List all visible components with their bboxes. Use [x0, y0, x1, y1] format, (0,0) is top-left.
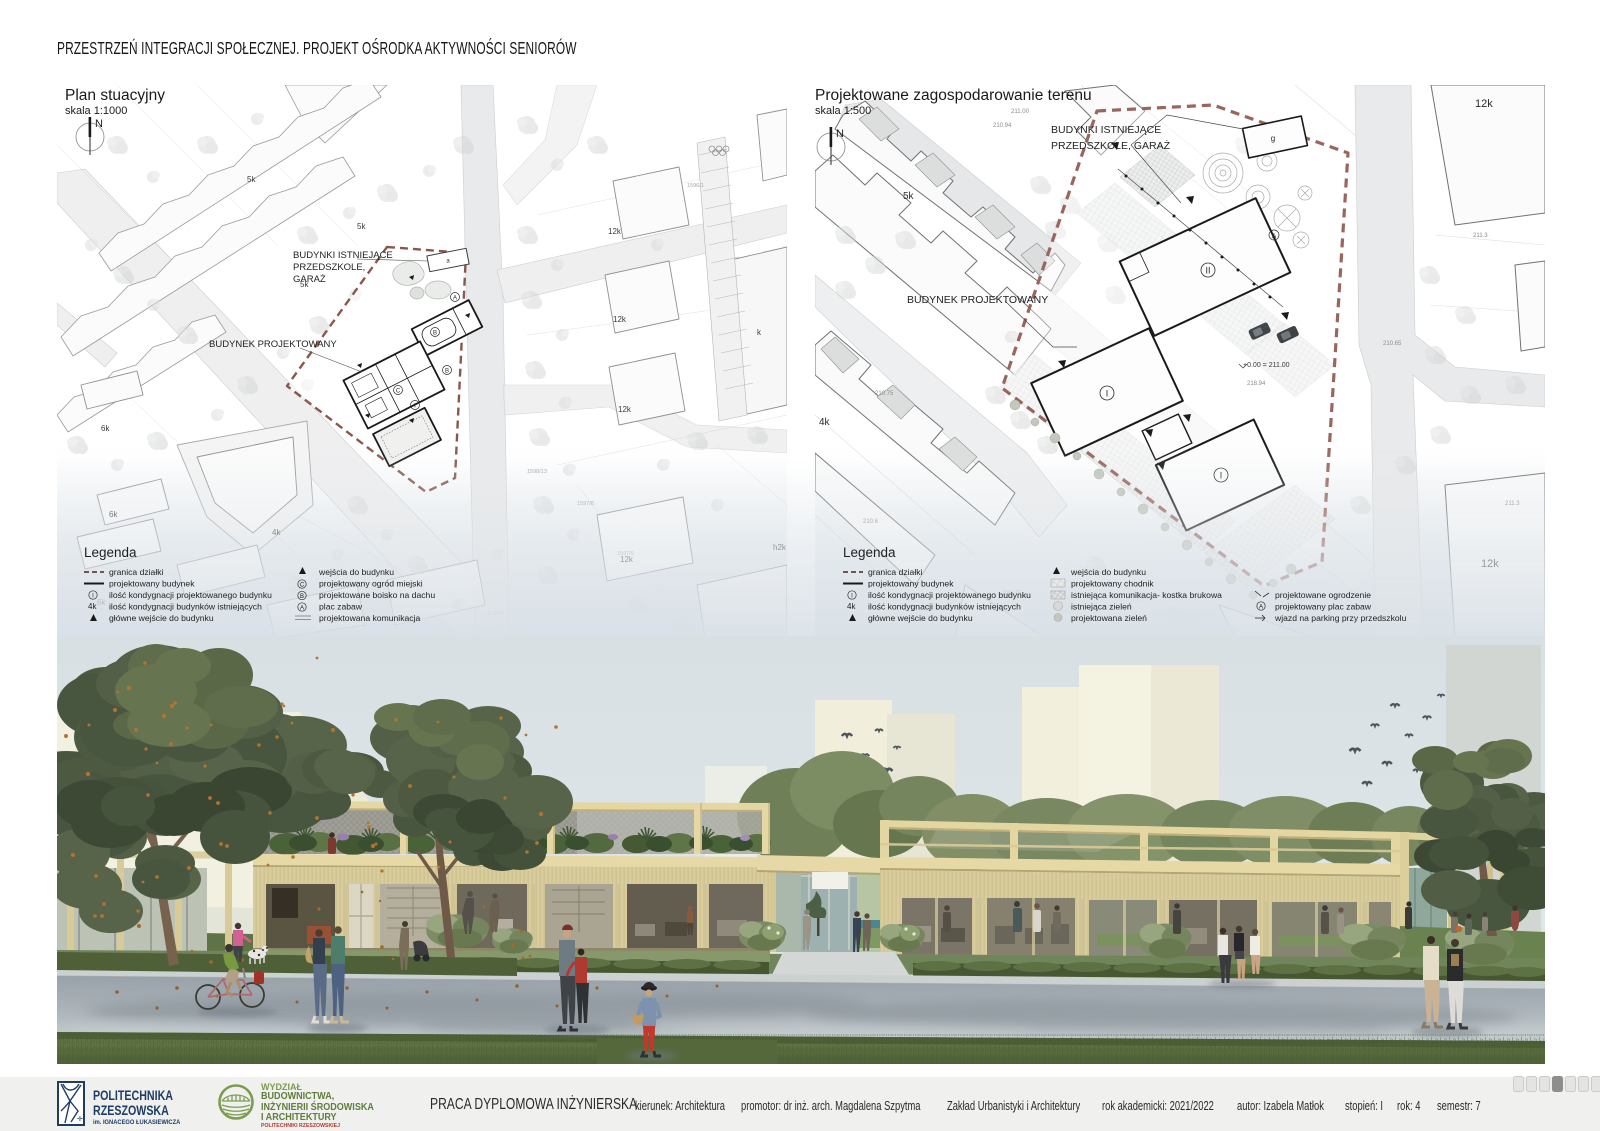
svg-text:✛: ✛ — [77, 1115, 83, 1123]
svg-text:1596/1: 1596/1 — [687, 183, 704, 189]
svg-text:4k: 4k — [819, 417, 831, 428]
svg-text:ilość kondygnacji projektowane: ilość kondygnacji projektowanego budynku — [109, 590, 272, 600]
svg-text:12k: 12k — [1475, 98, 1493, 110]
svg-text:211.3: 211.3 — [1473, 233, 1488, 239]
svg-text:211.00: 211.00 — [1011, 109, 1030, 115]
svg-text:+0.00 = 211.00: +0.00 = 211.00 — [1243, 362, 1290, 369]
svg-text:wejścia do budynku: wejścia do budynku — [1070, 567, 1146, 577]
svg-text:4k: 4k — [847, 602, 856, 611]
svg-text:istniejąca zieleń: istniejąca zieleń — [1071, 602, 1132, 612]
svg-text:I: I — [1106, 389, 1109, 399]
svg-text:główne wejście do budynku: główne wejście do budynku — [868, 613, 973, 623]
svg-text:projektowany budynek: projektowany budynek — [109, 579, 195, 589]
svg-text:projektowany chodnik: projektowany chodnik — [1071, 579, 1154, 589]
svg-text:ilość kondygnacji budynków ist: ilość kondygnacji budynków istniejących — [868, 602, 1021, 612]
svg-text:Plan stuacyjny: Plan stuacyjny — [65, 87, 165, 104]
svg-text:istniejąca komunikacja- kostka: istniejąca komunikacja- kostka brukowa — [1071, 590, 1222, 600]
svg-text:B: B — [300, 594, 304, 600]
svg-text:B: B — [445, 369, 449, 375]
svg-text:12k: 12k — [608, 227, 622, 236]
svg-text:C: C — [396, 389, 401, 395]
svg-text:BUDYNEK PROJEKTOWANY: BUDYNEK PROJEKTOWANY — [907, 294, 1048, 306]
svg-text:210.94: 210.94 — [993, 123, 1012, 129]
svg-text:wjazd na parking przy przedszk: wjazd na parking przy przedszkolu — [1274, 613, 1407, 623]
svg-text:BUDYNKI ISTNIEJĄCE: BUDYNKI ISTNIEJĄCE — [293, 250, 393, 261]
svg-text:Legenda: Legenda — [843, 545, 896, 560]
svg-text:PRZEDSZKOLE, GARAŻ: PRZEDSZKOLE, GARAŻ — [1051, 139, 1171, 152]
svg-text:projektowana zieleń: projektowana zieleń — [1071, 613, 1147, 623]
svg-text:BUDYNKI ISTNIEJĄCE: BUDYNKI ISTNIEJĄCE — [1051, 124, 1161, 136]
svg-text:A: A — [453, 296, 457, 302]
svg-text:5k: 5k — [247, 175, 256, 184]
svg-text:4k: 4k — [88, 602, 97, 611]
svg-text:projektowana komunikacja: projektowana komunikacja — [319, 613, 420, 623]
svg-text:skala 1:500: skala 1:500 — [815, 105, 871, 117]
svg-text:210.75: 210.75 — [875, 391, 894, 397]
svg-text:ilość kondygnacji budynków ist: ilość kondygnacji budynków istniejących — [109, 602, 262, 612]
svg-text:g: g — [1271, 134, 1275, 143]
svg-text:projektowany budynek: projektowany budynek — [868, 579, 954, 589]
svg-text:skala 1:1000: skala 1:1000 — [65, 105, 127, 117]
svg-text:ilość kondygnacji projektowane: ilość kondygnacji projektowanego budynku — [868, 590, 1031, 600]
svg-text:12k: 12k — [613, 315, 627, 324]
svg-text:projektowany ogród miejski: projektowany ogród miejski — [319, 579, 423, 589]
svg-text:granica działki: granica działki — [109, 567, 164, 577]
svg-text:N: N — [836, 128, 844, 140]
svg-text:wejścia do budynku: wejścia do budynku — [318, 567, 394, 577]
svg-text:6k: 6k — [101, 424, 110, 433]
svg-text:BUDYNEK PROJEKTOWANY: BUDYNEK PROJEKTOWANY — [209, 339, 337, 350]
svg-text:12k: 12k — [618, 405, 632, 414]
svg-text:projektowane ogrodzenie: projektowane ogrodzenie — [1275, 590, 1371, 600]
svg-text:projektowane boisko na dachu: projektowane boisko na dachu — [319, 590, 435, 600]
svg-text:II: II — [1205, 266, 1210, 276]
svg-text:C: C — [300, 583, 305, 589]
svg-text:Legenda: Legenda — [84, 545, 137, 560]
svg-text:210.65: 210.65 — [1383, 341, 1402, 347]
svg-text:A: A — [300, 606, 304, 612]
svg-text:Projektowane zagospodarowanie: Projektowane zagospodarowanie terenu — [815, 87, 1092, 104]
svg-text:5k: 5k — [300, 280, 309, 289]
svg-text:PRZEDSZKOLE,: PRZEDSZKOLE, — [293, 262, 365, 273]
svg-text:granica działki: granica działki — [868, 567, 923, 577]
svg-text:A: A — [1272, 233, 1277, 240]
svg-text:5k: 5k — [903, 191, 915, 202]
svg-text:główne wejście do budynku: główne wejście do budynku — [109, 613, 214, 623]
svg-text:projektowany plac zabaw: projektowany plac zabaw — [1275, 602, 1372, 612]
svg-text:218.94: 218.94 — [1247, 381, 1266, 387]
svg-text:N: N — [95, 118, 103, 130]
svg-text:A: A — [1259, 605, 1263, 611]
svg-text:plac zabaw: plac zabaw — [319, 602, 363, 612]
svg-text:5k: 5k — [357, 222, 366, 231]
svg-text:B: B — [433, 331, 437, 337]
svg-text:GARAŻ: GARAŻ — [293, 274, 326, 285]
